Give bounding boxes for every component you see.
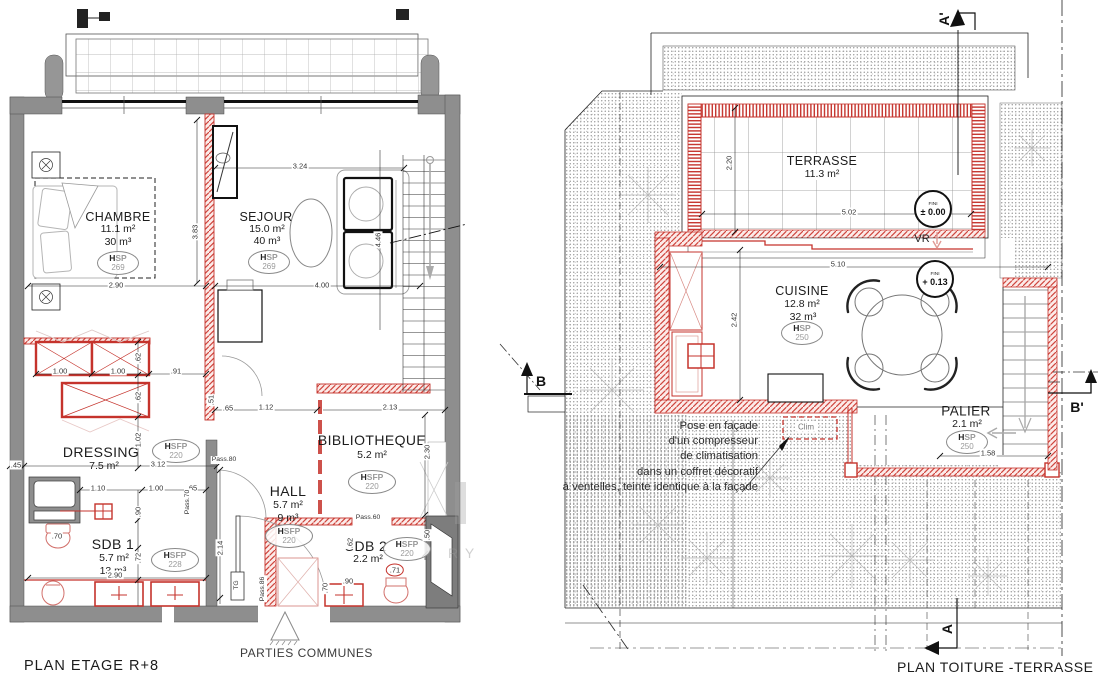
dimension-label: 1.00: [148, 484, 165, 493]
dimension-label: .65: [222, 404, 234, 413]
dimension-label: 3.24: [292, 162, 309, 171]
section-marker-b: B: [536, 373, 546, 389]
room-name-terrasse: TERRASSE: [785, 154, 860, 168]
room-area-sdb2: 2.2 m²: [351, 553, 385, 565]
dimension-label: 2.90: [107, 571, 124, 580]
section-marker-a-prime: A': [936, 12, 952, 25]
hsfp-badge-bibliotheque: HSFP 220: [348, 470, 396, 494]
common-areas-label: PARTIES COMMUNES: [240, 646, 373, 660]
passage-label: Pass.80: [211, 456, 238, 464]
hsp-badge-sejour: HSP 269: [248, 250, 290, 274]
room-area-sdb1: 5.7 m²: [99, 552, 129, 564]
room-name-sejour: SEJOUR: [239, 210, 292, 224]
room-area-palier: 2.1 m²: [952, 418, 982, 430]
dimension-label: 2.20: [725, 155, 734, 172]
room-volume-sejour: 40 m³: [254, 235, 281, 247]
dimension-label: .90: [134, 506, 143, 518]
room-name-chambre: CHAMBRE: [85, 210, 150, 224]
hsfp-badge-sdb1: HSFP 228: [151, 548, 199, 572]
room-area-cuisine: 12.8 m²: [784, 298, 820, 310]
passage-label: Pass.60: [355, 514, 382, 522]
dimension-label: .62: [134, 352, 143, 364]
dimension-label: .90: [342, 577, 354, 586]
section-marker-b-prime: B': [1070, 399, 1083, 415]
dimension-label: 2.14: [216, 540, 225, 557]
room-area-dressing: 7.5 m²: [89, 460, 119, 472]
room-area-sejour: 15.0 m²: [249, 223, 285, 235]
room-area-terrasse: 11.3 m²: [803, 168, 842, 180]
room-volume-hall: 9 m³: [278, 512, 299, 524]
dimension-label: 1.02: [134, 432, 143, 449]
dimension-label: .51: [207, 394, 216, 406]
room-area-chambre: 11.1 m²: [101, 223, 136, 235]
dimension-label: 3.83: [191, 224, 200, 241]
dimension-label: 2.13: [382, 403, 399, 412]
dimension-label: 1.10: [90, 484, 107, 493]
facade-compressor-annotation: Pose en façade d'un compresseur de clima…: [430, 419, 758, 495]
dimension-label: .62: [134, 391, 143, 403]
dimension-label: 5.02: [841, 208, 858, 217]
room-area-bibliotheque: 5.2 m²: [357, 449, 387, 461]
left-plan-title: PLAN ETAGE R+8: [24, 658, 159, 674]
dimension-label: 5.10: [830, 260, 847, 269]
level-marker-terrasse: FINI ± 0.00: [914, 190, 952, 228]
section-marker-a: A: [939, 624, 955, 634]
room-name-cuisine: CUISINE: [775, 284, 829, 298]
hsp-badge-cuisine: HSP 250: [781, 321, 823, 345]
dimension-label: 4.46: [374, 232, 383, 249]
dimension-label: .70: [51, 532, 63, 541]
room-name-dressing: DRESSING: [63, 444, 139, 460]
hsp-badge-chambre: HSP 269: [97, 251, 139, 275]
watermark: RY: [448, 545, 481, 561]
floor-plan-document: RY CHAMBRE 11.1 m² 30 m³ HSP 269 SEJOUR …: [0, 0, 1098, 692]
dimension-label: 1.00: [110, 367, 127, 376]
dimension-label: .45: [10, 461, 22, 470]
dimension-label: 1.12: [258, 403, 275, 412]
passage-label: Pass.70: [184, 489, 192, 516]
passage-label: Pass.86: [259, 576, 267, 603]
dimension-label: .50: [423, 529, 432, 541]
tg-label: TG: [233, 579, 241, 590]
level-marker-cuisine: FINI + 0.13: [916, 260, 954, 298]
floorplan-linework: [0, 0, 1098, 692]
room-name-bibliotheque: BIBLIOTHEQUE: [318, 432, 426, 448]
room-volume-chambre: 30 m³: [105, 236, 132, 248]
hsfp-badge-hall: HSFP 220: [265, 524, 313, 548]
dimension-label: 2.42: [730, 312, 739, 329]
dimension-label: 1.58: [980, 449, 997, 458]
dimension-label: .70: [321, 582, 330, 594]
room-name-palier: PALIER: [941, 404, 990, 419]
dimension-label: 2.90: [108, 281, 125, 290]
vr-label: VR: [914, 233, 929, 245]
room-name-sdb1: SDB 1: [92, 536, 134, 552]
dimension-label: .91: [170, 367, 182, 376]
dimension-label: 1.00: [52, 367, 69, 376]
dimension-label: .62: [346, 537, 355, 549]
right-plan-title: PLAN TOITURE -TERRASSE: [897, 659, 1093, 675]
room-area-hall: 5.7 m²: [273, 499, 303, 511]
dimension-label: 4.00: [314, 281, 331, 290]
room-name-hall: HALL: [270, 483, 307, 499]
clim-label: Clim: [796, 423, 816, 432]
dimension-label: .72: [134, 552, 143, 564]
dimension-label: 3.12: [150, 460, 167, 469]
